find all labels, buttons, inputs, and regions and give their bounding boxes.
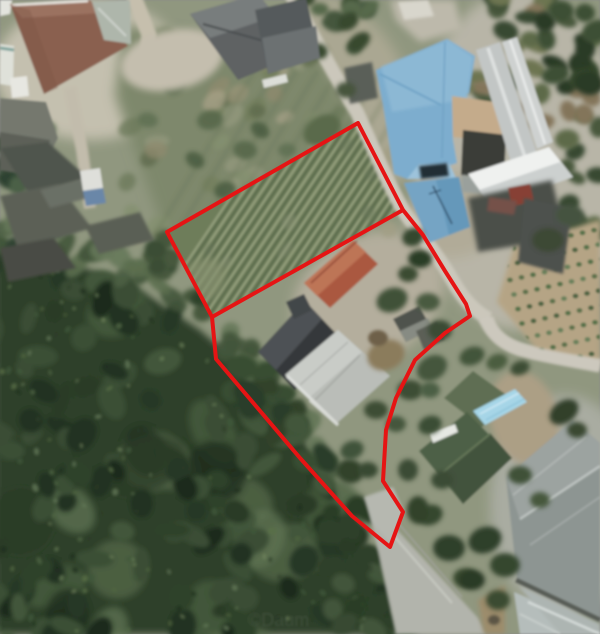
svg-text:©Daum: ©Daum <box>248 610 309 630</box>
